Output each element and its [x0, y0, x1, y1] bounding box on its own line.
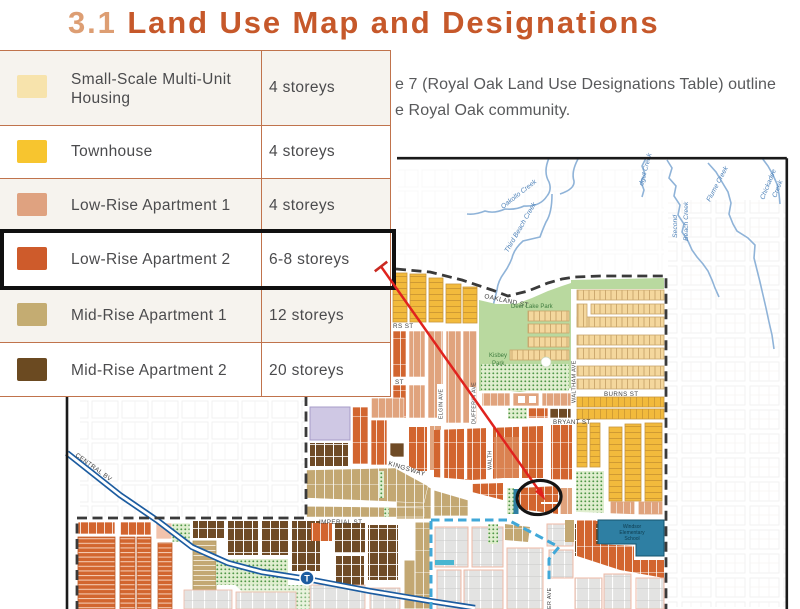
svg-text:Second: Second	[672, 215, 679, 238]
svg-text:WALTH: WALTH	[488, 450, 494, 470]
svg-text:Deer Lake Park: Deer Lake Park	[511, 304, 554, 310]
svg-text:BRYANT ST: BRYANT ST	[553, 419, 591, 426]
svg-text:ST: ST	[395, 379, 404, 386]
svg-text:WALTHAM AVE: WALTHAM AVE	[572, 360, 578, 403]
svg-text:ELGIN AVE: ELGIN AVE	[439, 389, 445, 419]
svg-text:Kisbey: Kisbey	[489, 353, 507, 359]
svg-text:ER AVE: ER AVE	[547, 588, 553, 609]
svg-text:T: T	[304, 573, 310, 583]
svg-text:IMPERIAL ST: IMPERIAL ST	[319, 519, 362, 526]
svg-text:RS ST: RS ST	[393, 323, 414, 330]
svg-text:School: School	[624, 536, 639, 542]
svg-text:Park: Park	[492, 361, 505, 367]
svg-text:Beach Creek: Beach Creek	[683, 201, 690, 241]
svg-text:BURNS ST: BURNS ST	[604, 391, 639, 398]
svg-text:DUFFERIN AVE: DUFFERIN AVE	[472, 382, 478, 424]
